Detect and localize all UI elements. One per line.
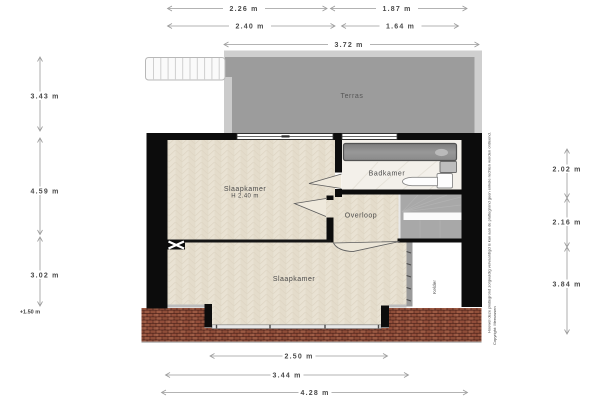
svg-text:1.64 m: 1.64 m (386, 24, 415, 31)
svg-text:+1.50 m: +1.50 m (20, 310, 40, 316)
svg-text:Kelder: Kelder (432, 280, 438, 294)
svg-text:2.02 m: 2.02 m (553, 167, 582, 174)
svg-text:Slaapkamer: Slaapkamer (273, 276, 316, 283)
svg-text:4.59 m: 4.59 m (31, 189, 60, 196)
svg-text:3.02 m: 3.02 m (31, 273, 60, 280)
svg-text:Badkamer: Badkamer (369, 171, 406, 178)
svg-text:Copyright: Meeuwsen: Copyright: Meeuwsen (492, 306, 497, 345)
svg-text:Slaapkamer: Slaapkamer (224, 186, 267, 193)
svg-text:3.72 m: 3.72 m (335, 42, 364, 49)
svg-text:Overloop: Overloop (345, 213, 377, 220)
svg-text:H 2.40 m: H 2.40 m (231, 194, 259, 200)
svg-text:3.84 m: 3.84 m (553, 282, 582, 289)
svg-text:3.44 m: 3.44 m (273, 373, 302, 380)
svg-text:2.50 m: 2.50 m (285, 354, 314, 361)
svg-text:2.16 m: 2.16 m (553, 220, 582, 227)
svg-text:Terras: Terras (340, 93, 363, 100)
svg-text:2.26 m: 2.26 m (230, 6, 259, 13)
svg-text:Hoewel deze plattegrond zorgvu: Hoewel deze plattegrond zorgvuldig verva… (487, 132, 492, 333)
svg-text:1.87 m: 1.87 m (383, 6, 412, 13)
svg-text:4.28 m: 4.28 m (301, 390, 330, 397)
svg-text:2.40 m: 2.40 m (236, 24, 265, 31)
svg-text:3.43 m: 3.43 m (31, 94, 60, 101)
